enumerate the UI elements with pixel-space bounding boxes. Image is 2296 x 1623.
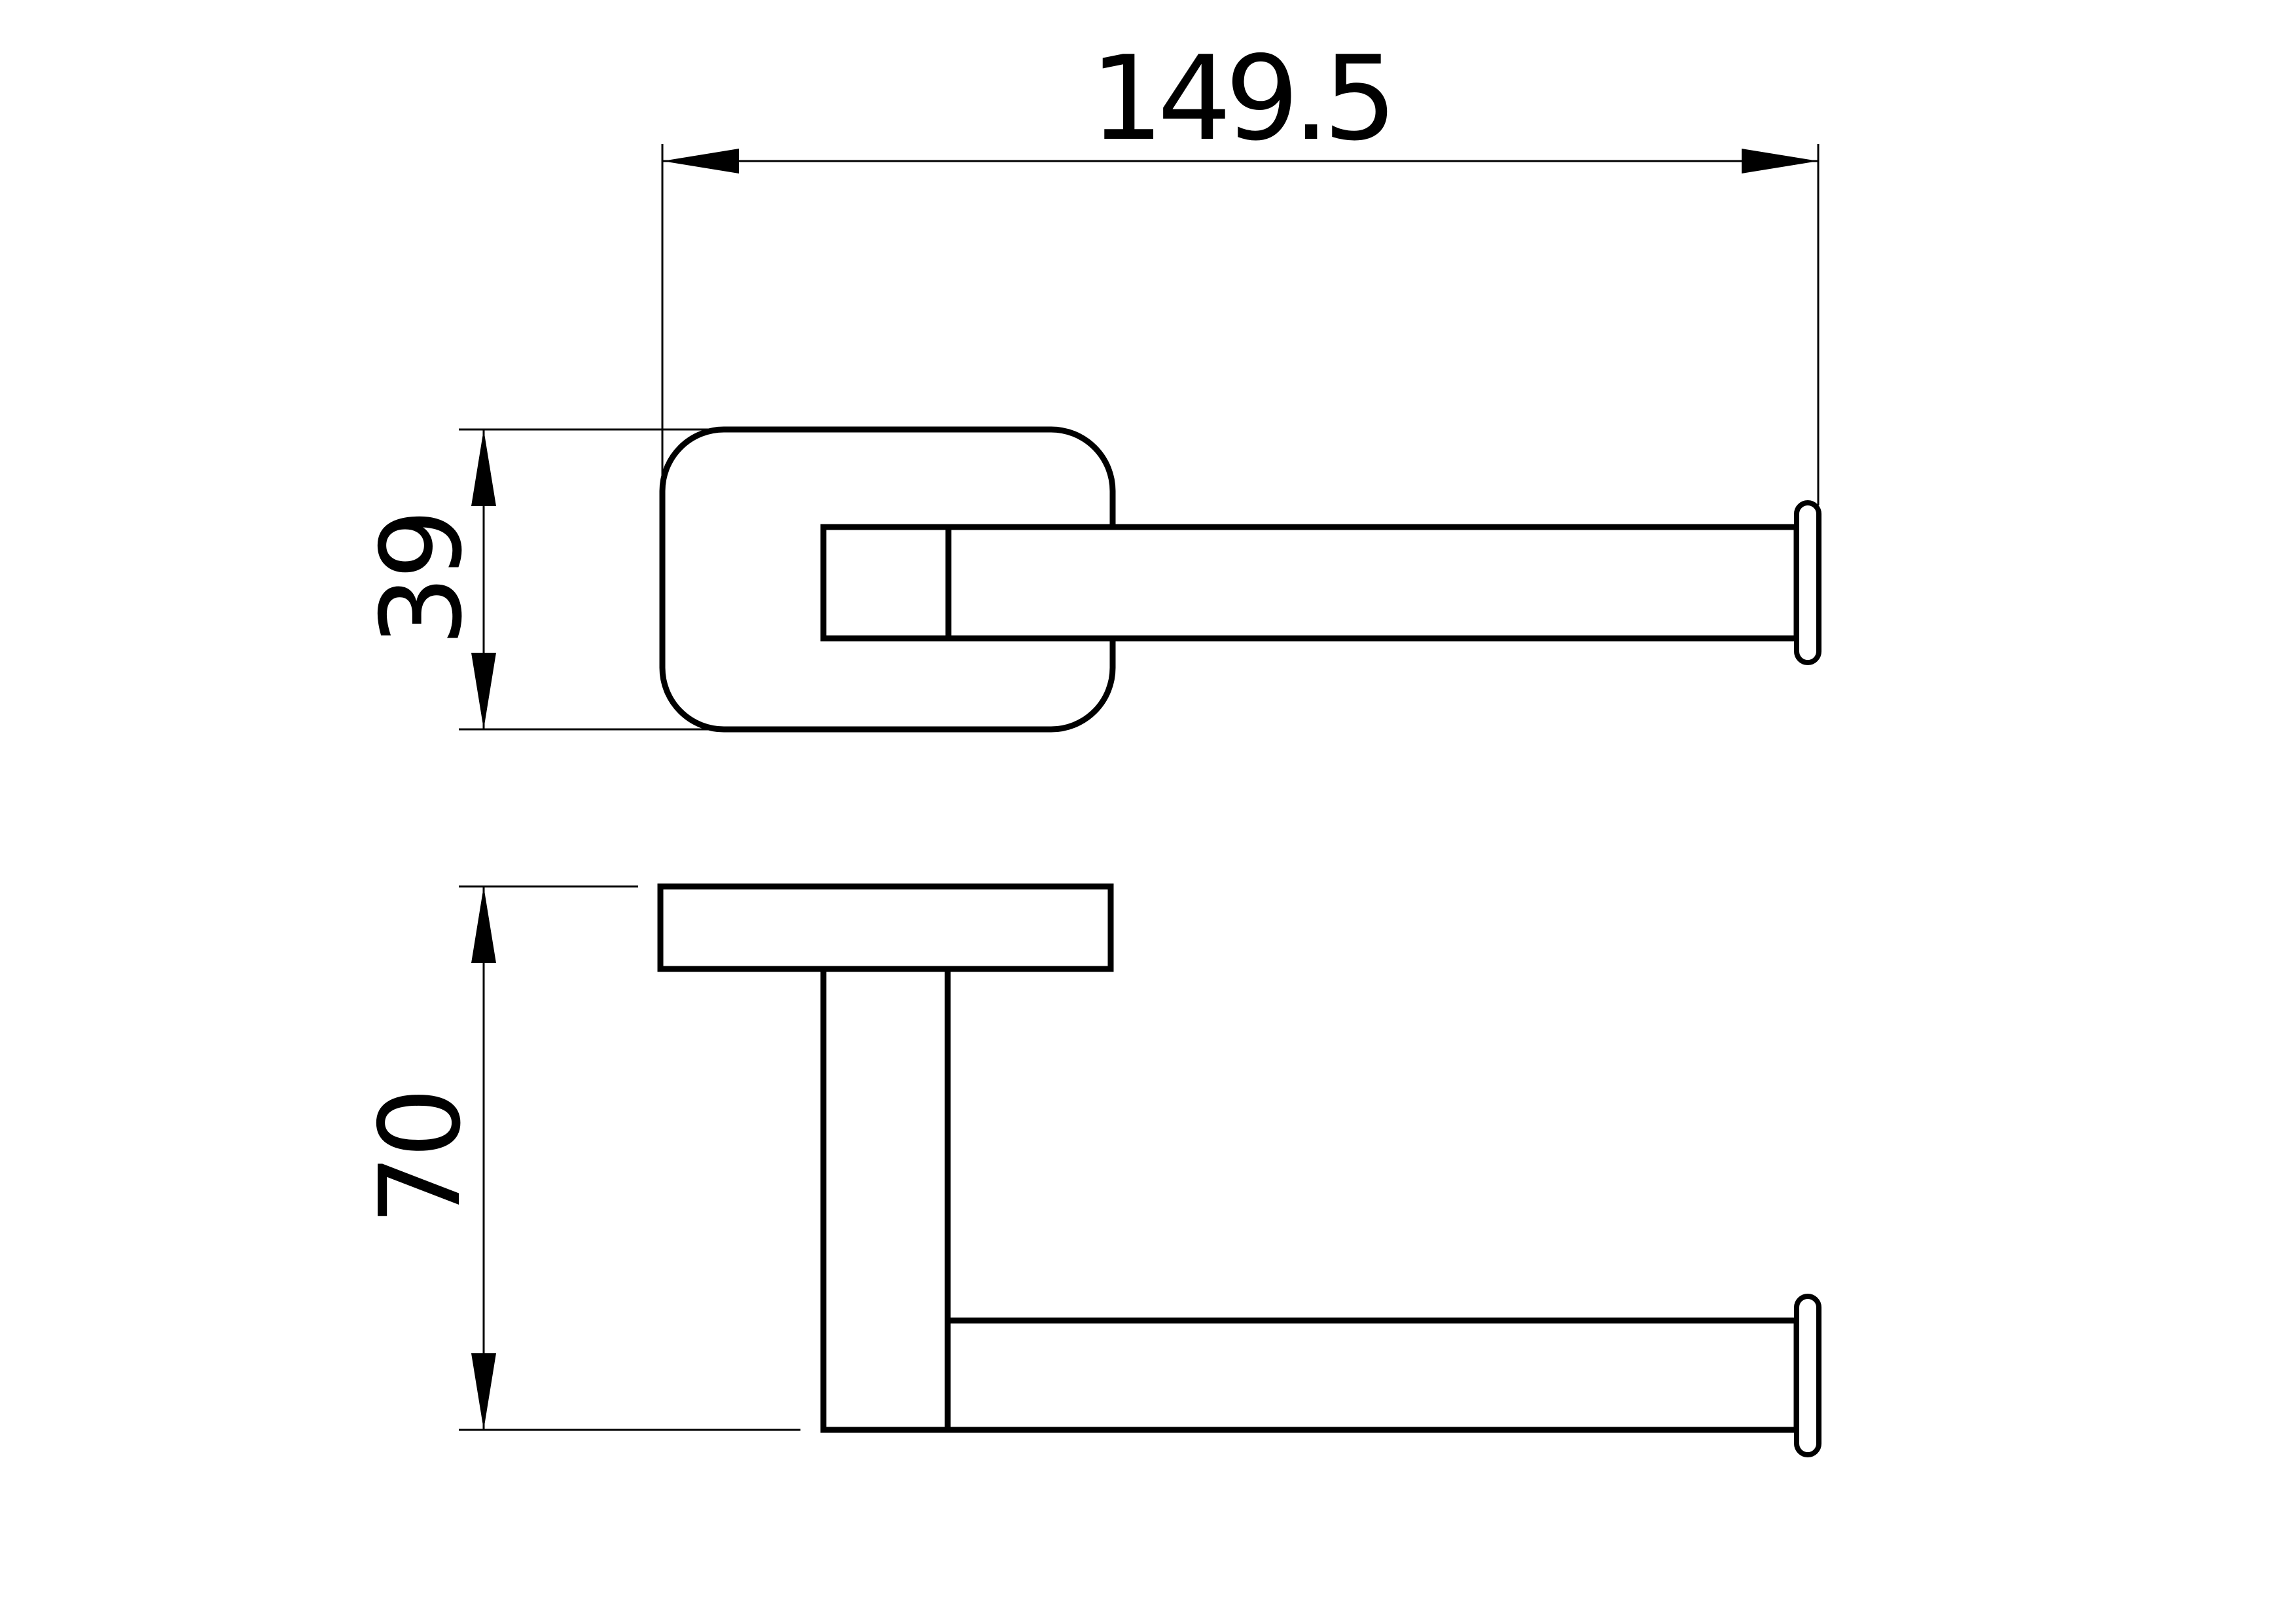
dim-39-arrow-up-icon bbox=[471, 429, 496, 506]
front-view-wall-plate bbox=[660, 886, 1111, 969]
dim-39-arrow-down-icon bbox=[471, 653, 496, 729]
dim-width-arrow-left-icon bbox=[662, 149, 739, 173]
drawing-sheet: 149.5 39 70 bbox=[0, 0, 2296, 1623]
top-view-arm-end-cap bbox=[1797, 503, 1819, 663]
front-view-arm-end-cap bbox=[1797, 1296, 1819, 1455]
dim-overall-height-label: 70 bbox=[356, 1091, 486, 1225]
front-view bbox=[660, 886, 1819, 1455]
front-view-arm bbox=[948, 1321, 1797, 1430]
technical-drawing-canvas: 149.5 39 70 bbox=[0, 0, 2296, 1623]
dim-plate-height-label: 39 bbox=[357, 513, 487, 646]
front-view-post bbox=[823, 969, 948, 1430]
dim-70-arrow-up-icon bbox=[471, 886, 496, 963]
top-view-arm bbox=[823, 527, 1797, 638]
top-view bbox=[662, 429, 1819, 729]
dim-width-arrow-right-icon bbox=[1742, 149, 1818, 173]
dim-70-arrow-down-icon bbox=[471, 1353, 496, 1430]
dim-width-label: 149.5 bbox=[1090, 31, 1391, 166]
